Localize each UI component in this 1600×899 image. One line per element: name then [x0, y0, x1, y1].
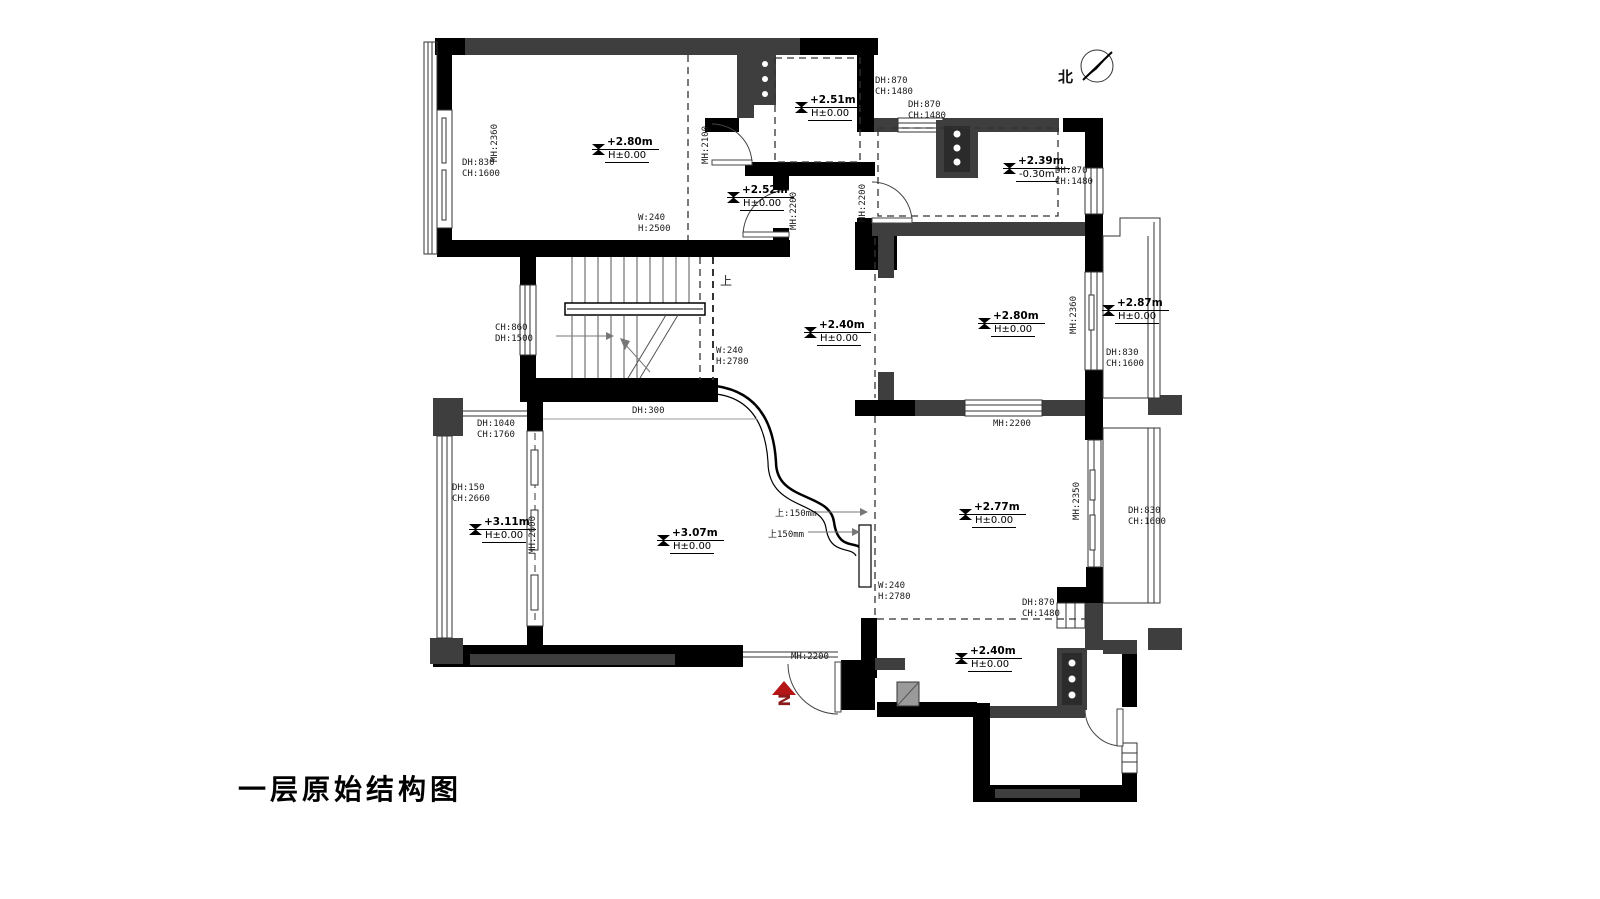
- elevation-marker: +3.11m H±0.00: [469, 516, 536, 543]
- dim-label-w240-stairs: W:240 H:2780: [716, 346, 749, 368]
- dim-label-ch860: CH:860 DH:1500: [495, 323, 533, 345]
- stairs-up-label: 上: [720, 272, 732, 289]
- floor-plan: N +2.80m H±0.00 +2.51m H±0.00 +2.52m H±0…: [0, 0, 1600, 899]
- dim-label-mh2200-entry: MH:2200: [791, 652, 829, 663]
- drawing-title: 一层原始结构图: [238, 768, 462, 808]
- dim-label-mh2200-d: MH:2200: [858, 184, 868, 222]
- elevation-marker: +2.52m H±0.00: [727, 184, 794, 211]
- curved-wall: [543, 386, 871, 587]
- north-arrow-icon: [1081, 50, 1113, 82]
- shaft: [897, 682, 919, 706]
- step-note-2: 上150mm: [768, 527, 804, 540]
- dim-label-dh870-a: DH:870 CH:1480: [875, 76, 913, 98]
- dim-label-w240-i: W:240 H:2780: [878, 581, 911, 603]
- dim-label-dh300: DH:300: [632, 406, 665, 417]
- floorplan-drawing: N: [0, 0, 1600, 899]
- dashed-boundaries: [688, 55, 1085, 619]
- dim-label-dh870-bot: DH:870 CH:1480: [1022, 598, 1060, 620]
- dim-label-dh830-right-bot: DH:830 CH:1600: [1128, 506, 1166, 528]
- elevation-marker: +2.87m H±0.00: [1102, 297, 1169, 324]
- dim-label-mh2200-c: MH:2200: [789, 192, 799, 230]
- elevation-marker: +2.77m H±0.00: [959, 501, 1026, 528]
- dim-label-mh2360-left: MH:2360: [490, 124, 500, 162]
- elevation-marker: +2.40m H±0.00: [955, 645, 1022, 672]
- dim-label-w240-top: W:240 H:2500: [638, 213, 671, 235]
- dim-label-dh870-b: DH:870 CH:1480: [908, 100, 946, 122]
- elevation-marker: +2.80m H±0.00: [592, 136, 659, 163]
- dim-label-mh2100: MH:2100: [701, 126, 711, 164]
- dim-label-dh870-right-top: DH:870 CH:1480: [1055, 166, 1093, 188]
- dim-label-mh2600: MH:2600: [528, 516, 538, 554]
- elevation-marker: +2.80m H±0.00: [978, 310, 1045, 337]
- dim-label-mh2350: MH:2350: [1072, 482, 1082, 520]
- stairs: [556, 257, 705, 378]
- dim-label-dh1040: DH:1040 CH:1760: [477, 419, 515, 441]
- svg-text:N: N: [775, 693, 794, 706]
- dim-label-mh2360-right: MH:2360: [1069, 296, 1079, 334]
- north-label: 北: [1058, 66, 1073, 87]
- dim-label-dh150: DH:150 CH:2660: [452, 483, 490, 505]
- elevation-marker: +2.40m H±0.00: [804, 319, 871, 346]
- elevation-marker: +3.07m H±0.00: [657, 527, 724, 554]
- step-note-1: 上:150mm: [775, 506, 817, 519]
- elevation-marker: +2.51m H±0.00: [795, 94, 862, 121]
- dim-label-dh830-right-top: DH:830 CH:1600: [1106, 348, 1144, 370]
- dim-label-mh2200-e: MH:2200: [993, 419, 1031, 430]
